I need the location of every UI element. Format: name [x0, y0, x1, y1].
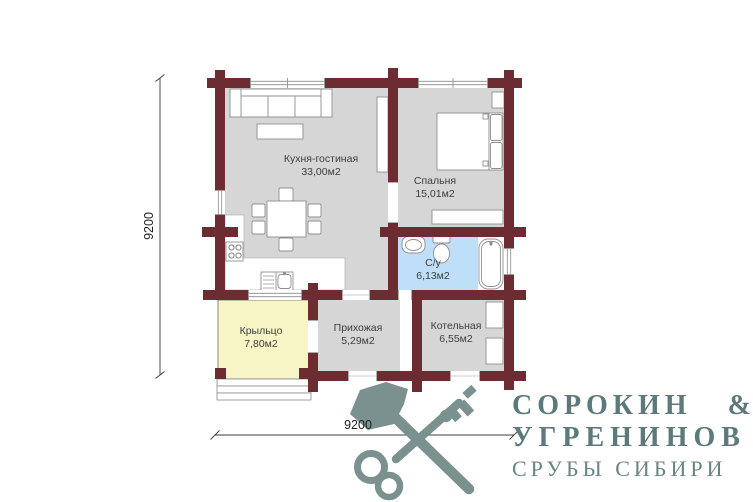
- room-area: 7,80м2: [240, 338, 283, 351]
- coffee-table: [257, 124, 303, 139]
- logo-wordmark: СОРОКИН & УГРЕНИНОВ СРУБЫ СИБИРИ: [512, 390, 753, 481]
- room-label-bedroom: Спальня 15,01м2: [414, 175, 456, 201]
- door-hallway-living: [342, 290, 370, 300]
- room-name: Прихожая: [334, 322, 383, 335]
- room-label-kitchen-living: Кухня-гостиная 33,00м2: [284, 153, 358, 179]
- sofa: [230, 89, 332, 117]
- room-area: 15,01м2: [414, 188, 456, 201]
- logo-line-1: СОРОКИН &: [512, 390, 753, 421]
- room-name: С/у: [416, 257, 450, 270]
- window-living: [250, 78, 325, 88]
- porch-post: [299, 368, 310, 379]
- nightstand: [492, 92, 504, 108]
- room-label-boiler: Котельная 6,55м2: [431, 320, 482, 346]
- dresser: [432, 210, 503, 224]
- pillow: [491, 115, 503, 141]
- key-bow-ring: [378, 475, 400, 497]
- porch-steps: [217, 379, 311, 400]
- door-bedroom: [388, 182, 398, 223]
- room-name: Спальня: [414, 175, 456, 188]
- wall-hallway-boiler: [412, 300, 422, 392]
- room-name: Кухня-гостиная: [284, 153, 358, 166]
- window-porch: [248, 290, 302, 300]
- room-area: 6,13м2: [416, 270, 450, 283]
- floor-plan-page: Кухня-гостиная 33,00м2 Спальня 15,01м2 С…: [0, 0, 753, 502]
- wardrobe: [377, 97, 388, 172]
- logo-line-2: УГРЕНИНОВ: [512, 422, 753, 453]
- door-entrance: [348, 371, 377, 381]
- room-area: 5,29м2: [334, 335, 383, 348]
- pillow: [491, 143, 503, 169]
- wall-left: [215, 70, 225, 300]
- door-bathroom: [398, 290, 412, 300]
- dimension-label-vertical: 9200: [142, 212, 156, 240]
- logo-mark: [350, 382, 485, 497]
- room-label-bathroom: С/у 6,13м2: [416, 257, 450, 283]
- door-porch-hallway: [308, 320, 318, 353]
- wall-right: [504, 70, 514, 390]
- dimension-line-vertical: [156, 75, 165, 379]
- room-name: Котельная: [431, 320, 482, 333]
- room-label-hallway: Прихожая 5,29м2: [334, 322, 383, 348]
- kitchen-sink: [261, 272, 293, 291]
- stove: [226, 242, 243, 261]
- logo-line-3: СРУБЫ СИБИРИ: [512, 456, 753, 481]
- room-area: 33,00м2: [284, 166, 358, 179]
- door-boiler: [450, 371, 480, 381]
- bed: [437, 113, 503, 170]
- window-bedroom: [418, 78, 488, 88]
- dimension-label-horizontal: 9200: [344, 418, 372, 432]
- porch-post: [215, 368, 226, 379]
- room-label-porch: Крыльцо 7,80м2: [240, 325, 283, 351]
- room-area: 6,55м2: [431, 333, 482, 346]
- window-bathroom: [504, 248, 514, 275]
- room-name: Крыльцо: [240, 325, 283, 338]
- window-kitchen: [215, 190, 225, 215]
- bathtub: [479, 239, 503, 289]
